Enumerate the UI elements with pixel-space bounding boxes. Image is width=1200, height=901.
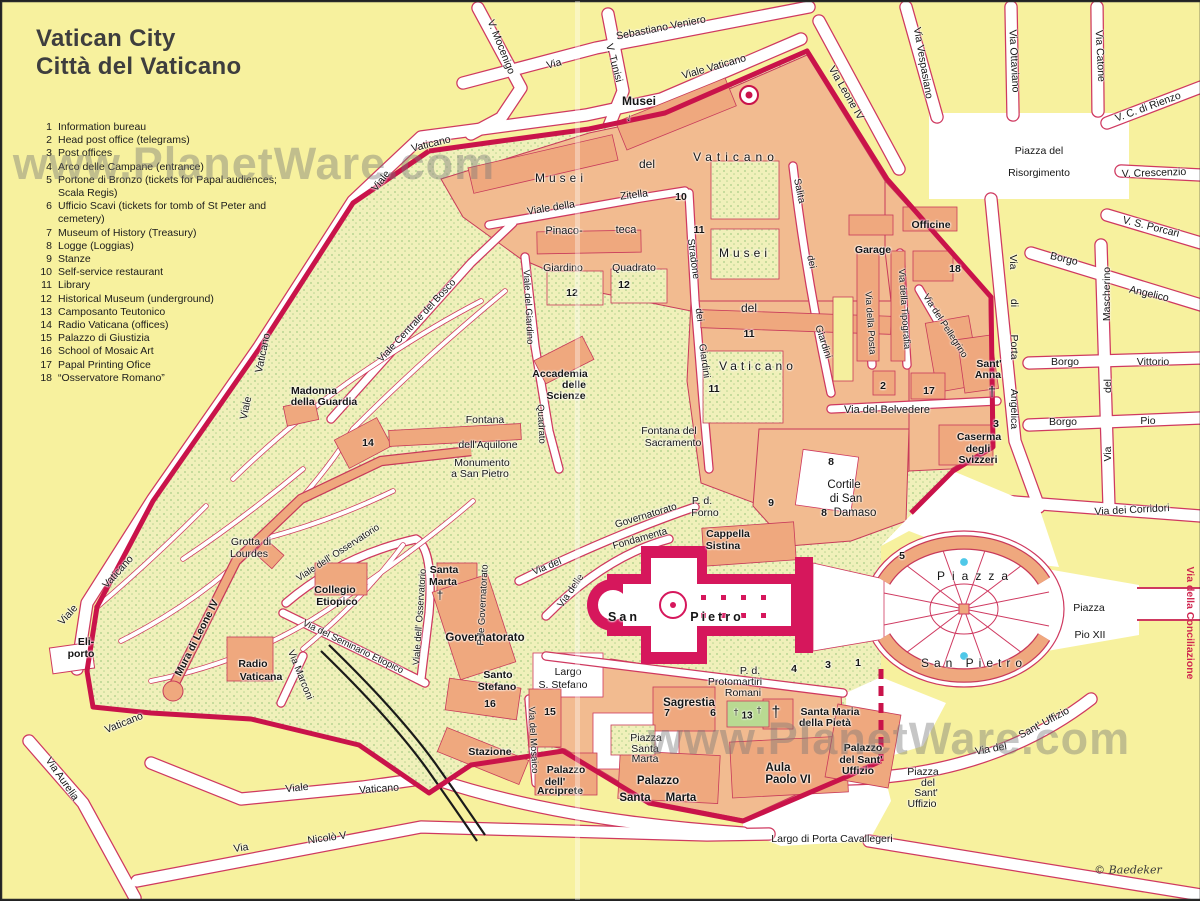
legend-item-text: Library <box>58 279 289 292</box>
legend-item-number: 12 <box>37 293 52 306</box>
map-title: Vatican City Città del Vaticano <box>36 25 241 81</box>
legend-item-text: Historical Museum (underground) <box>58 293 289 306</box>
legend-item-number: 13 <box>37 306 52 319</box>
legend-item-text: Museum of History (Treasury) <box>58 227 289 240</box>
legend-item-number: 10 <box>37 266 52 279</box>
legend-item-number: 9 <box>37 253 52 266</box>
legend-item-text: Ufficio Scavi (tickets for tomb of St Pe… <box>58 200 289 226</box>
legend-item: 6Ufficio Scavi (tickets for tomb of St P… <box>37 200 289 226</box>
legend-item-text: Logge (Loggias) <box>58 240 289 253</box>
legend-item-number: 6 <box>37 200 52 226</box>
legend-item: 13Camposanto Teutonico <box>37 306 289 319</box>
legend-item-text: Palazzo di Giustizia <box>58 332 289 345</box>
watermark: www.PlanetWare.com <box>648 713 1130 765</box>
fountain-south <box>960 652 969 661</box>
watermark: www.PlanetWare.com <box>13 138 495 190</box>
legend-item-number: 11 <box>37 279 52 292</box>
legend-item: 18“Osservatore Romano” <box>37 372 289 385</box>
map-credit: © Baedeker <box>1094 864 1162 877</box>
legend-item-text: Stanze <box>58 253 289 266</box>
map-stage: V. MocenigoViaSebastiano VenieroV. Tunis… <box>0 0 1200 901</box>
fountain-north <box>960 558 969 567</box>
legend-item-number: 16 <box>37 345 52 358</box>
legend-item-text: Self-service restaurant <box>58 266 289 279</box>
legend-item-number: 14 <box>37 319 52 332</box>
legend-item: 15Palazzo di Giustizia <box>37 332 289 345</box>
legend-item: 12Historical Museum (underground) <box>37 293 289 306</box>
legend-item: 10Self-service restaurant <box>37 266 289 279</box>
legend-item-number: 7 <box>37 227 52 240</box>
legend-item: 1Information bureau <box>37 121 289 134</box>
legend-item: 14Radio Vaticana (offices) <box>37 319 289 332</box>
legend-item-number: 18 <box>37 372 52 385</box>
legend-item-text: Camposanto Teutonico <box>58 306 289 319</box>
legend-item: 7Museum of History (Treasury) <box>37 227 289 240</box>
obelisk <box>959 604 969 614</box>
legend-item-number: 8 <box>37 240 52 253</box>
legend-item-text: “Osservatore Romano” <box>58 372 289 385</box>
legend-item-text: Radio Vaticana (offices) <box>58 319 289 332</box>
title-english: Vatican City <box>36 25 241 53</box>
legend-item: 17Papal Printing Ofice <box>37 359 289 372</box>
legend-item: 16School of Mosaic Art <box>37 345 289 358</box>
map-fold-line <box>575 1 580 900</box>
spiral-ramp-icon <box>740 86 758 104</box>
legend-item-number: 17 <box>37 359 52 372</box>
legend-item: 11Library <box>37 279 289 292</box>
legend-item-number: 15 <box>37 332 52 345</box>
legend-item: 8Logge (Loggias) <box>37 240 289 253</box>
legend-item-text: School of Mosaic Art <box>58 345 289 358</box>
title-italian: Città del Vaticano <box>36 53 241 81</box>
legend-item-number: 1 <box>37 121 52 134</box>
legend-item-text: Information bureau <box>58 121 289 134</box>
legend-item: 9Stanze <box>37 253 289 266</box>
legend-item-text: Papal Printing Ofice <box>58 359 289 372</box>
